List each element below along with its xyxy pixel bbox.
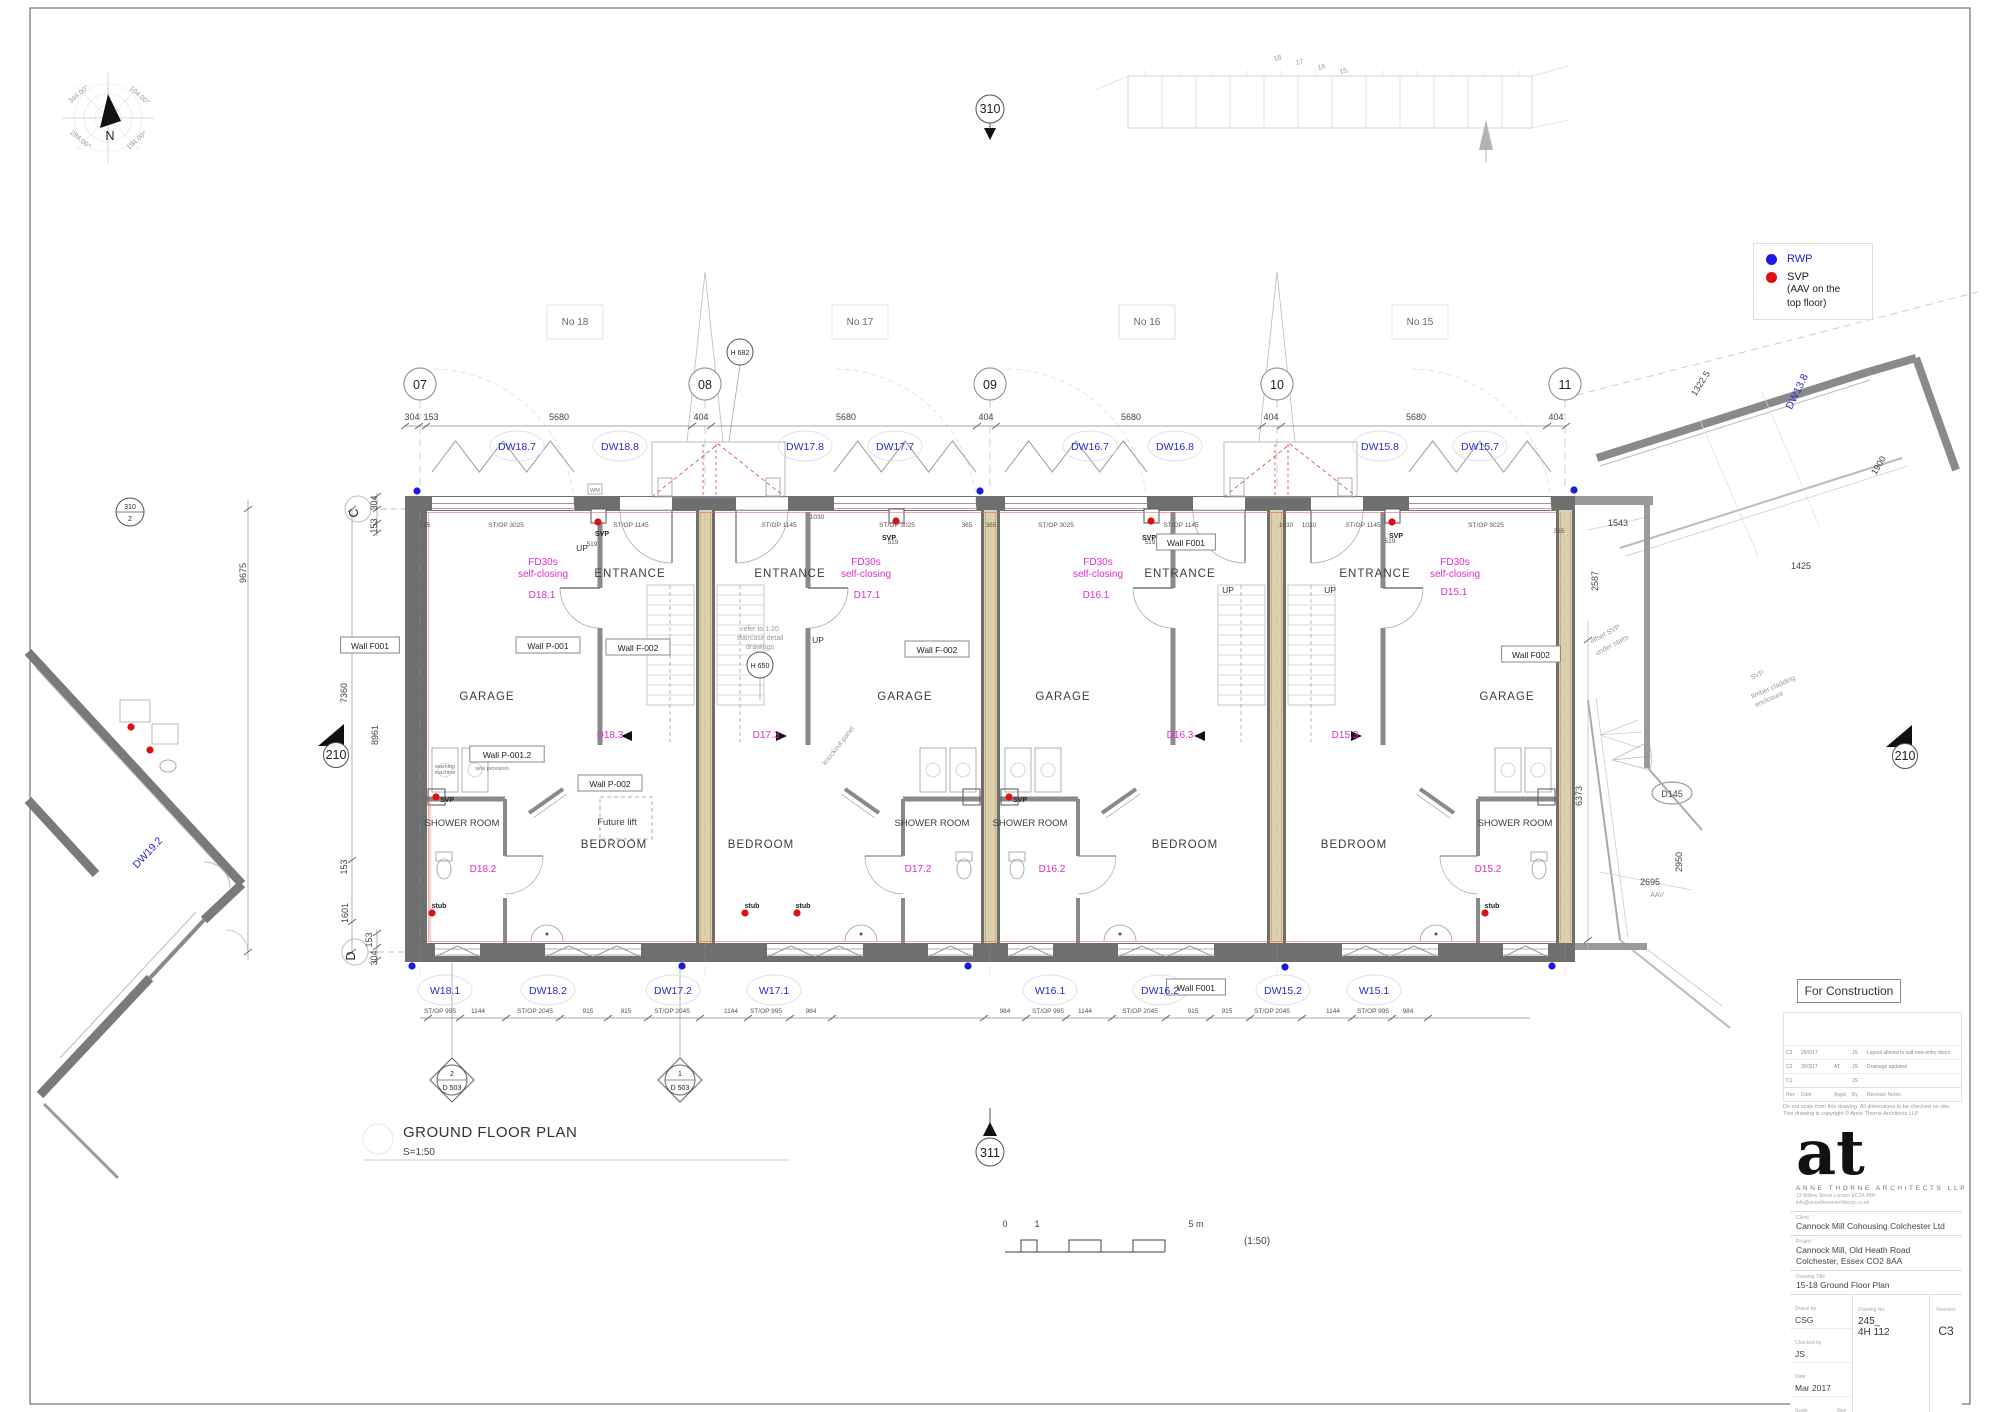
wall-label: Wall P-001.2 xyxy=(483,750,532,760)
plot-number: No 16 xyxy=(1134,317,1161,328)
door-swing-arc xyxy=(1440,856,1478,894)
wc xyxy=(1531,852,1547,861)
wall-label: Wall F002 xyxy=(1512,650,1550,660)
room-label: GARAGE xyxy=(1035,691,1090,703)
revision-row: C3 26/5/17 JS Layout altered to suit new… xyxy=(1784,1045,1961,1059)
pipe-label: SVP xyxy=(595,531,609,538)
dimension-text: 915 xyxy=(1188,1008,1199,1015)
wc xyxy=(956,852,972,861)
opening-tag: DW15.7 xyxy=(1461,441,1499,453)
pipe-label: SVP xyxy=(1389,533,1403,540)
wall-line xyxy=(1532,66,1568,76)
dimension-text: 9675 xyxy=(238,563,248,583)
legend-rwp: RWP xyxy=(1764,253,1862,265)
plan-rect xyxy=(1128,76,1532,128)
door-tag: FD30s xyxy=(1083,557,1112,568)
leader-line xyxy=(729,365,740,441)
stair-direction-arrow xyxy=(1194,731,1205,741)
entrance-door-opening xyxy=(736,497,788,510)
door-tag: D17.3 xyxy=(753,730,780,741)
bubble-label: N xyxy=(105,129,114,143)
revision-cell: Revision C3 xyxy=(1930,1295,1962,1412)
note-text: 104.00° xyxy=(127,85,151,107)
revision-row: C1 JS xyxy=(1784,1073,1961,1087)
dimension-text: 365 xyxy=(962,522,973,529)
bubble-label: 1 xyxy=(678,1071,682,1078)
scale-label: S=1:50 xyxy=(403,1147,435,1158)
drawing-number-2: 4H 112 xyxy=(1858,1327,1924,1338)
appliance xyxy=(950,748,976,792)
drawing-title-section: Drawing Title 15-18 Ground Floor Plan xyxy=(1790,1270,1962,1294)
legend-svp-note2: top floor) xyxy=(1787,298,1826,309)
dimension-text: 1 xyxy=(1034,1219,1039,1229)
dimension-text: ST/OP 995 xyxy=(750,1008,782,1015)
dimension-text: 915 xyxy=(1222,1008,1233,1015)
wall-line xyxy=(150,920,204,978)
revision-header: Rev Date Appd By Revision Notes xyxy=(1784,1087,1961,1101)
door-tag: D18.3 xyxy=(597,730,624,741)
wall-label: Wall F001 xyxy=(1177,983,1215,993)
neighbour-wall xyxy=(204,884,242,920)
rwp-dot-icon xyxy=(964,962,971,969)
client-section: Client Cannock Mill Cohousing Colchester… xyxy=(1790,1211,1962,1235)
dimension-text: 1543 xyxy=(1608,518,1628,528)
note-text: knockout panel xyxy=(822,725,857,767)
bubble-label: 11 xyxy=(1559,378,1572,392)
wall-line xyxy=(1620,458,1902,548)
appliance xyxy=(1035,748,1061,792)
up-label: UP xyxy=(1324,585,1336,595)
room-label: GARAGE xyxy=(877,691,932,703)
bubble-label: H 650 xyxy=(751,663,770,670)
pipe-label: stub xyxy=(796,903,811,910)
plan-circle xyxy=(956,763,970,777)
entrance-door-opening xyxy=(620,497,672,510)
wall-label: Wall F001 xyxy=(351,641,389,651)
title-bubble xyxy=(363,1124,393,1154)
opening-tag: DW18.7 xyxy=(498,441,536,453)
neighbour-wall xyxy=(40,978,150,1095)
dimension-text: D145 xyxy=(1661,789,1683,799)
plan-circle xyxy=(1501,763,1515,777)
appliance xyxy=(1005,748,1031,792)
door-tag: FD30s xyxy=(1440,557,1469,568)
north-arrow-icon xyxy=(100,94,121,128)
svp-dot-icon xyxy=(432,793,439,800)
svp-dot-icon xyxy=(741,909,748,916)
room-label: GARAGE xyxy=(459,691,514,703)
legend-rwp-label: RWP xyxy=(1787,253,1812,265)
door-tag: self-closing xyxy=(518,569,568,580)
bubble-label: 07 xyxy=(413,378,427,392)
door-swing-arc xyxy=(620,511,672,563)
legend-svp: SVP (AAV on the top floor) xyxy=(1764,271,1862,310)
rwp-dot-icon xyxy=(1766,254,1777,265)
wall-label: Wall P-001 xyxy=(527,641,569,651)
dimension-text: 915 xyxy=(583,1008,594,1015)
drawing-title: 15-18 Ground Floor Plan xyxy=(1796,1280,1956,1291)
scale-label: (1:50) xyxy=(1244,1236,1270,1247)
dimension-text: 6373 xyxy=(1574,786,1584,806)
note-text: sink provision xyxy=(475,766,508,772)
plan-circle xyxy=(1435,933,1438,936)
appliance xyxy=(920,748,946,792)
dimension-text: ST/OP 1145 xyxy=(613,522,649,529)
dimension-text: 115 xyxy=(420,522,431,529)
door-swing-arc xyxy=(1311,511,1363,563)
bubble-label: D xyxy=(344,951,358,960)
svp-dot-icon xyxy=(1005,793,1012,800)
plan-rect xyxy=(152,724,178,744)
note-text: 18 xyxy=(1273,54,1282,63)
dimension-text: 5680 xyxy=(836,412,856,422)
dimension-text: 404 xyxy=(978,412,993,422)
room-label: ENTRANCE xyxy=(754,568,825,580)
plot-number: No 18 xyxy=(562,317,589,328)
legend-svp-label: SVP (AAV on the top floor) xyxy=(1787,271,1840,310)
dimension-text: ST/OP 995 xyxy=(1357,1008,1389,1015)
opening-tag: DW15.2 xyxy=(1264,985,1302,997)
dimension-text: ST/OP 1145 xyxy=(761,522,797,529)
wall-line xyxy=(1648,768,1702,830)
dimension-text: 5680 xyxy=(549,412,569,422)
dimension-text: 1144 xyxy=(1326,1008,1340,1015)
door-swing-arc xyxy=(1383,588,1423,628)
drawing-number-cell: Drawing No. 245_ 4H 112 xyxy=(1853,1295,1930,1412)
wc xyxy=(437,859,451,879)
plot-number: No 17 xyxy=(847,317,874,328)
wall-label: Wall F-002 xyxy=(917,645,958,655)
door-tag: self-closing xyxy=(841,569,891,580)
bubble-label: 10 xyxy=(1270,378,1284,392)
door-tag: D16.1 xyxy=(1083,590,1110,601)
dimension-text: ST/OP 3025 xyxy=(1038,522,1074,529)
bubble-label: D 503 xyxy=(671,1085,690,1092)
svp-dot-icon xyxy=(1766,272,1777,283)
door-tag: D16.2 xyxy=(1039,864,1066,875)
dimension-text: 153 xyxy=(423,412,438,422)
door-swing-arc xyxy=(1133,588,1173,628)
opening-tag: W18.1 xyxy=(430,985,461,997)
opening-tag: DW17.2 xyxy=(654,985,692,997)
opening-tag: DW19.2 xyxy=(130,835,165,871)
note-text: machine xyxy=(435,770,456,776)
door-tag: D15.1 xyxy=(1441,587,1468,598)
legend: RWP SVP (AAV on the top floor) xyxy=(1753,243,1873,320)
note-text: refer to 1:20 xyxy=(741,626,779,633)
pipe-label: stub xyxy=(745,903,760,910)
bubble-label: 09 xyxy=(983,378,997,392)
drawn-by: CSG xyxy=(1795,1315,1847,1326)
up-label: UP xyxy=(576,543,588,553)
svp-dot-icon xyxy=(594,518,601,525)
plan-path xyxy=(226,930,248,952)
bubble-label: C xyxy=(347,508,361,517)
opening-tag: DW17.8 xyxy=(786,441,824,453)
room-label: BEDROOM xyxy=(1152,839,1218,851)
door-swing-arc xyxy=(1409,369,1551,511)
dimension-text: 0 xyxy=(1002,1219,1007,1229)
bubble-label: H 682 xyxy=(731,350,750,357)
door-swing-arc xyxy=(865,856,903,894)
bubble-label: 08 xyxy=(698,378,712,392)
door-tag: FD30s xyxy=(851,557,880,568)
room-label: Future lift xyxy=(597,817,637,828)
dimension-text: 2587 xyxy=(1590,571,1600,591)
door-tag: self-closing xyxy=(1430,569,1480,580)
dimension-text: 365 xyxy=(1554,528,1565,535)
dimension-text: 1144 xyxy=(724,1008,738,1015)
dimension-text: 153 xyxy=(364,932,374,947)
plan-circle xyxy=(1011,763,1025,777)
bubble-label: 310 xyxy=(980,102,1001,116)
dimension-text: 1144 xyxy=(471,1008,485,1015)
svp-dot-icon xyxy=(428,909,435,916)
appliance xyxy=(1495,748,1521,792)
dimension-text: 1425 xyxy=(1791,561,1811,571)
extension-wall xyxy=(1575,943,1647,950)
dimension-text: 984 xyxy=(1403,1008,1414,1015)
dimension-text: 404 xyxy=(1263,412,1278,422)
dimension-text: 5680 xyxy=(1121,412,1141,422)
dimension-text: ST/OP 2045 xyxy=(1122,1008,1158,1015)
door-swing-arc xyxy=(560,588,600,628)
room-label: ENTRANCE xyxy=(1144,568,1215,580)
plan-polygon xyxy=(984,128,996,140)
bubble-label: 310 xyxy=(124,504,136,511)
wall-label: Wall F001 xyxy=(1167,538,1205,548)
wall-line xyxy=(1600,380,1870,466)
dimension-text: 1030 xyxy=(810,514,825,521)
wc xyxy=(1532,859,1546,879)
plot-number: No 15 xyxy=(1407,317,1434,328)
door-tag: D18.1 xyxy=(529,590,556,601)
rwp-dot-icon xyxy=(1570,486,1577,493)
wall-line xyxy=(1620,940,1730,1028)
wall-line xyxy=(1762,392,1820,528)
dimension-text: 1030 xyxy=(1279,522,1294,529)
opening-tag: DW17.7 xyxy=(876,441,914,453)
plan-polygon xyxy=(983,1122,997,1136)
dimension-text: ST/OP 995 xyxy=(424,1008,456,1015)
door-tag: self-closing xyxy=(1073,569,1123,580)
door-tag: D15.2 xyxy=(1475,864,1502,875)
pipe-label: SVP xyxy=(1013,797,1027,804)
client-name: Cannock Mill Cohousing Colchester Ltd xyxy=(1796,1221,1956,1232)
bubble-label: 311 xyxy=(980,1146,1000,1160)
dimension-text: 5680 xyxy=(1406,412,1426,422)
door-swing-arc xyxy=(808,588,848,628)
wc xyxy=(1010,859,1024,879)
door-swing-arc xyxy=(1005,369,1147,511)
rwp-dot-icon xyxy=(976,487,983,494)
neighbour-wall xyxy=(28,800,96,874)
door-swing-arc xyxy=(736,511,788,563)
dimension-text: 2695 xyxy=(1640,877,1660,887)
opening-tag: DW16.8 xyxy=(1156,441,1194,453)
plan-circle xyxy=(860,933,863,936)
note-text: 17 xyxy=(1295,58,1304,67)
opening-tag: W16.1 xyxy=(1035,985,1066,997)
note-text: 16 xyxy=(1317,63,1326,72)
door-tag: D16.3 xyxy=(1167,730,1194,741)
dimension-text: 304 xyxy=(369,950,379,965)
door-tag: D17.1 xyxy=(854,590,881,601)
note-text: staircase detail xyxy=(737,635,784,642)
room-label: SHOWER ROOM xyxy=(993,818,1068,829)
wall-line xyxy=(60,912,196,1058)
dimension-text: ST/OP 1145 xyxy=(1163,522,1199,529)
bubble-label: 210 xyxy=(326,748,347,762)
room-label: BEDROOM xyxy=(581,839,647,851)
drawing-number-1: 245_ xyxy=(1858,1316,1924,1327)
room-label: ENTRANCE xyxy=(1339,568,1410,580)
svp-dot-icon xyxy=(1147,517,1154,524)
wall-line xyxy=(1868,358,1916,372)
room-label: GARAGE xyxy=(1479,691,1534,703)
dimension-text: 404 xyxy=(693,412,708,422)
door-tag: FD30s xyxy=(528,557,557,568)
drawing-sheet: Wall F001Wall P-001Wall F-002Wall F-002W… xyxy=(0,0,2000,1412)
note-text: AAV xyxy=(1650,892,1664,899)
svp-dot-icon xyxy=(146,746,153,753)
room-label: SHOWER ROOM xyxy=(425,818,500,829)
wall-line xyxy=(1095,76,1128,90)
bubble-label: D 503 xyxy=(443,1085,462,1092)
rwp-dot-icon xyxy=(1281,963,1288,970)
note-text: WM xyxy=(590,488,600,494)
firm-address: 13 Willow Street London EC2A 4BH info@an… xyxy=(1790,1193,1962,1211)
pipe-label: stub xyxy=(1485,903,1500,910)
pipe-label: SVP xyxy=(882,535,896,542)
dimension-text: 915 xyxy=(621,1008,632,1015)
architect-logo: at xyxy=(1790,1122,1962,1183)
external-wall-left xyxy=(405,496,427,962)
plan-circle xyxy=(1119,933,1122,936)
dimension-text: 8961 xyxy=(370,725,380,745)
dimension-text: 365 xyxy=(986,522,997,529)
plan-circle xyxy=(926,763,940,777)
note-text: drawings xyxy=(746,644,775,651)
plan-circle xyxy=(1531,763,1545,777)
dimension-text: 1030 xyxy=(1302,522,1317,529)
title-block-grid: Drawn by CSG Checked by JS Date Mar 2017… xyxy=(1790,1294,1962,1412)
door-tag: D15.3 xyxy=(1332,730,1359,741)
dimension-text: 1601 xyxy=(340,903,350,923)
opening-tag: DW15.8 xyxy=(1361,441,1399,453)
door-swing-arc xyxy=(505,856,543,894)
door-tag: D18.2 xyxy=(470,864,497,875)
scale-bar xyxy=(1005,1240,1165,1252)
dimension-text: 153 xyxy=(369,518,379,533)
wall-line xyxy=(44,1104,118,1178)
bubble-label: 2 xyxy=(450,1071,454,1078)
rwp-dot-icon xyxy=(1548,962,1555,969)
dimension-text: 519 xyxy=(587,541,598,548)
status-label: For Construction xyxy=(1805,984,1894,998)
up-label: UP xyxy=(1222,585,1234,595)
status-box: For Construction xyxy=(1797,979,1901,1003)
svp-dot-icon xyxy=(1481,909,1488,916)
checked-by: JS xyxy=(1795,1349,1847,1360)
neighbour-wall xyxy=(1597,372,1868,458)
wall-line xyxy=(1700,420,1758,556)
door-tag: D17.2 xyxy=(905,864,932,875)
dimension-text: ST/OP 1145 xyxy=(1345,522,1381,529)
plan-path xyxy=(1600,720,1642,748)
entrance-door-opening xyxy=(1311,497,1363,510)
fixture xyxy=(160,760,176,772)
floor-plan-svg: Wall F001Wall P-001Wall F-002Wall F-002W… xyxy=(0,0,2000,1412)
note-text: 194.00° xyxy=(125,129,149,151)
wc xyxy=(436,852,452,861)
dimension-text: ST/OP 3025 xyxy=(1468,522,1504,529)
up-label: UP xyxy=(812,635,824,645)
rwp-dot-icon xyxy=(413,487,420,494)
neighbour-wall xyxy=(28,652,242,884)
opening-tag: DW16.7 xyxy=(1071,441,1109,453)
plan-circle xyxy=(546,933,549,936)
project-section: Project Cannock Mill, Old Heath Road Col… xyxy=(1790,1235,1962,1270)
room-label: BEDROOM xyxy=(728,839,794,851)
extension-wall xyxy=(1644,502,1650,768)
pipe-label: SVP xyxy=(440,797,454,804)
plan-circle xyxy=(1041,763,1055,777)
site-north-arrow-icon xyxy=(1479,120,1493,150)
drawn-checked-column: Drawn by CSG Checked by JS Date Mar 2017… xyxy=(1790,1295,1853,1412)
revision-value: C3 xyxy=(1935,1324,1957,1338)
extension-wall xyxy=(1575,496,1653,505)
plan-title: GROUND FLOOR PLAN xyxy=(403,1124,577,1141)
wc xyxy=(957,859,971,879)
bubble-label: 210 xyxy=(1895,749,1916,763)
svp-dot-icon xyxy=(793,909,800,916)
dimension-text: 1144 xyxy=(1078,1008,1092,1015)
legend-svp-note1: (AAV on the xyxy=(1787,284,1840,295)
note-text: 346.00° xyxy=(67,83,91,105)
dimension-text: 5 m xyxy=(1188,1219,1203,1229)
title-block: at ANNE THORNE ARCHITECTS LLP 13 Willow … xyxy=(1790,1122,1962,1412)
dimension-text: 1322.5 xyxy=(1689,369,1712,398)
opening-tag: DW18.2 xyxy=(529,985,567,997)
svp-dot-icon xyxy=(127,723,134,730)
note-text: 15 xyxy=(1339,67,1348,76)
wall-line xyxy=(1648,950,1722,1006)
dimension-text: 7360 xyxy=(339,683,349,703)
project-line2: Colchester, Essex CO2 8AA xyxy=(1796,1256,1956,1267)
dimension-text: 153 xyxy=(339,859,349,874)
dimension-text: ST/OP 3025 xyxy=(879,522,915,529)
wall-label: Wall P-002 xyxy=(589,779,631,789)
door-swing-arc xyxy=(834,369,976,511)
opening-tag: W17.1 xyxy=(759,985,790,997)
room-label: ENTRANCE xyxy=(594,568,665,580)
opening-tag: W15.1 xyxy=(1359,985,1390,997)
note-text: SVP xyxy=(1750,669,1766,681)
dimension-text: ST/OP 995 xyxy=(1032,1008,1064,1015)
dimension-text: 404 xyxy=(1548,412,1563,422)
dimension-text: 304 xyxy=(369,495,379,510)
rwp-dot-icon xyxy=(678,962,685,969)
dimension-text: ST/OP 3025 xyxy=(488,522,524,529)
room-label: BEDROOM xyxy=(1321,839,1387,851)
dimension-text: 984 xyxy=(806,1008,817,1015)
plan-rect xyxy=(120,700,150,722)
date-value: Mar 2017 xyxy=(1795,1383,1847,1394)
firm-name: ANNE THORNE ARCHITECTS LLP xyxy=(1790,1183,1962,1193)
bubble-label: 2 xyxy=(128,516,132,523)
revision-row: C2 30/3/17 AT JS Drainage updated xyxy=(1784,1059,1961,1073)
